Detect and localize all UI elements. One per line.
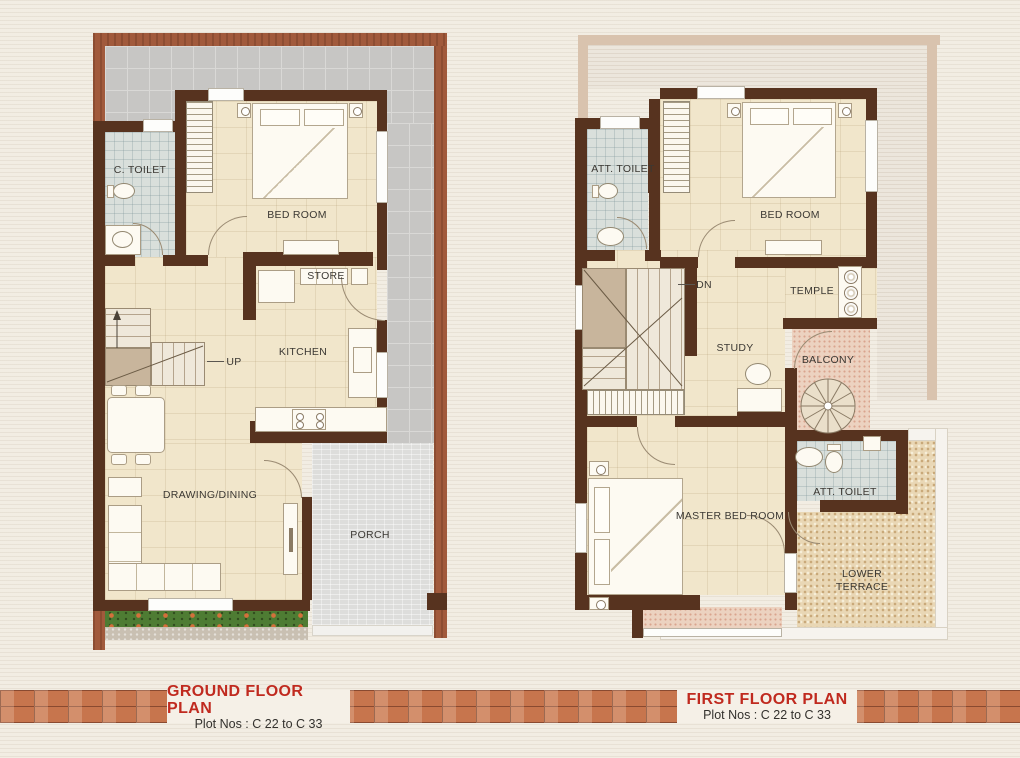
plot-boundary-left-top <box>93 46 105 121</box>
ff-window-bedroom-right <box>865 120 878 192</box>
sofa-bottom-section <box>108 563 221 591</box>
gravel-strip <box>98 627 308 640</box>
window-kitchen-right <box>376 352 388 398</box>
roof-surface-right <box>877 88 927 400</box>
wall-kitchen-bottom <box>250 432 387 443</box>
room-label-master-bed-room: MASTER BED ROOM <box>676 510 784 522</box>
ff-wall-bedroom-top <box>660 88 877 99</box>
first-floor-plot-nos: Plot Nos : C 22 to C 33 <box>703 708 831 722</box>
stair-label-up: UP <box>226 356 241 368</box>
double-bed <box>252 103 348 199</box>
ff-toilet2-washbasin <box>795 447 823 467</box>
wall-drawing-right <box>302 497 312 600</box>
ff-window-terrace-door <box>784 553 797 593</box>
ff-wall-bedroom-bottom-a <box>660 257 698 268</box>
dn-leader-line <box>678 284 695 285</box>
spiral-staircase <box>799 377 857 435</box>
ff-bedside-table-right <box>838 103 852 118</box>
room-label-study: STUDY <box>716 342 753 354</box>
lower-terrace-right <box>908 441 935 512</box>
first-floor-title-plate: FIRST FLOOR PLAN Plot Nos : C 22 to C 33 <box>677 690 857 723</box>
wall-left-outer <box>93 121 105 607</box>
ff-wall-toilet-bottom-b <box>645 250 661 261</box>
window-bedroom-top <box>208 88 244 101</box>
bedroom-wardrobe <box>186 101 213 193</box>
study-chair <box>745 363 771 385</box>
side-table <box>108 477 142 497</box>
toilet-wc <box>113 183 135 199</box>
wall-bedroom-bottom-a <box>175 255 208 266</box>
side-yard-right <box>387 123 434 443</box>
master-bed <box>588 478 683 595</box>
ff-wall-toilet2-bottom <box>820 500 908 512</box>
dining-chair <box>111 385 127 396</box>
refrigerator <box>258 270 295 303</box>
stair-label-dn: DN <box>696 279 712 291</box>
master-fan-bottom <box>589 597 609 610</box>
master-fan-top <box>589 461 609 476</box>
window-drawing-front <box>148 598 233 611</box>
terrace-frame-right <box>935 428 948 640</box>
ff-toilet2-geyser <box>863 436 881 451</box>
room-label-bed-room: BED ROOM <box>267 209 327 221</box>
room-label-c-toilet: C. TOILET <box>114 164 167 176</box>
window-toilet <box>143 119 173 132</box>
wall-toilet-bottom-a <box>93 255 135 266</box>
ff-window-left-master <box>575 503 587 553</box>
ff-bedroom-dresser <box>765 240 822 255</box>
ff-window-bedroom-top <box>697 86 745 99</box>
dining-chair <box>111 454 127 465</box>
ground-floor-plan: C. TOILET BED ROOM STORE KITCHEN UP DRAW… <box>93 33 447 650</box>
lower-balcony-strip <box>643 607 782 629</box>
ff-toilet1-wc <box>598 183 618 199</box>
window-bedroom-right <box>376 131 388 203</box>
brick-band <box>0 690 1020 723</box>
stair-diagonal-lines <box>582 268 685 390</box>
bedside-table-left <box>237 103 251 118</box>
ff-wall-master-top-a <box>582 416 637 427</box>
roof-outline-right <box>927 45 937 400</box>
kitchen-sink <box>353 347 372 373</box>
ff-hall-closet <box>587 390 685 415</box>
first-floor-title: FIRST FLOOR PLAN <box>686 691 847 708</box>
ff-window-toilet-top <box>600 116 640 129</box>
toilet-washbasin <box>112 231 133 248</box>
ff-toilet2-wc-tank <box>827 444 841 451</box>
first-floor-plan: ATT. TOILET BED ROOM DN TEMPLE STUDY BAL… <box>575 33 948 653</box>
room-label-att-toilet-top: ATT. TOILET <box>591 163 654 175</box>
plot-boundary-right <box>434 46 447 638</box>
plot-boundary-top <box>93 33 447 46</box>
wall-store-stub <box>243 252 256 320</box>
bedroom-dresser <box>283 240 339 255</box>
room-label-att-toilet-side: ATT. TOILET <box>813 486 876 498</box>
terrace-frame-top <box>908 428 936 441</box>
ff-bedside-table-left <box>727 103 741 118</box>
roof-outline-top <box>578 35 940 45</box>
staircase-down <box>582 268 685 390</box>
ground-floor-title: GROUND FLOOR PLAN <box>167 683 350 717</box>
room-label-store: STORE <box>307 270 344 282</box>
ground-floor-plot-nos: Plot Nos : C 22 to C 33 <box>195 717 323 731</box>
dining-table <box>107 397 165 453</box>
room-label-lower-terrace: LOWER TERRACE <box>830 568 894 594</box>
ff-toilet2-wc <box>825 451 843 473</box>
room-label-porch: PORCH <box>350 529 389 541</box>
up-leader-line <box>207 361 224 362</box>
toilet-wc-tank <box>107 185 114 198</box>
staircase-up <box>105 308 205 386</box>
floor-plan-sheet: C. TOILET BED ROOM STORE KITCHEN UP DRAW… <box>0 0 1020 758</box>
room-label-drawing-dining: DRAWING/DINING <box>163 489 257 501</box>
wall-bedroom-top <box>175 90 387 101</box>
room-label-ff-bed-room: BED ROOM <box>760 209 820 221</box>
room-label-temple: TEMPLE <box>790 285 834 297</box>
wall-bedroom-left <box>175 90 186 266</box>
ff-wall-bottom-stub <box>632 610 643 638</box>
garden-strip <box>98 610 308 627</box>
stair-direction-lines <box>105 308 205 386</box>
temple-unit <box>838 266 862 318</box>
bedside-table-right <box>349 103 363 118</box>
ff-double-bed <box>742 102 836 198</box>
ff-bedroom-wardrobe <box>663 101 690 193</box>
ground-floor-title-plate: GROUND FLOOR PLAN Plot Nos : C 22 to C 3… <box>167 690 350 723</box>
roof-surface-top <box>588 45 927 88</box>
ff-wall-toilet-bottom-a <box>575 250 615 261</box>
dining-chair <box>135 454 151 465</box>
room-label-balcony: BALCONY <box>802 354 854 366</box>
room-label-kitchen: KITCHEN <box>279 346 327 358</box>
ff-balcony-sill <box>643 628 782 637</box>
tv-unit <box>283 503 298 575</box>
dining-chair <box>135 385 151 396</box>
roof-outline-left <box>578 45 588 123</box>
kitchen-stove <box>292 409 326 430</box>
ff-toilet1-wc-tank <box>592 185 599 198</box>
ff-wall-bedroom-left <box>649 99 660 261</box>
boundary-gate-pillar <box>427 593 447 610</box>
porch-step <box>312 625 433 636</box>
ff-wall-temple-bottom <box>783 318 877 329</box>
study-desk <box>737 388 782 412</box>
